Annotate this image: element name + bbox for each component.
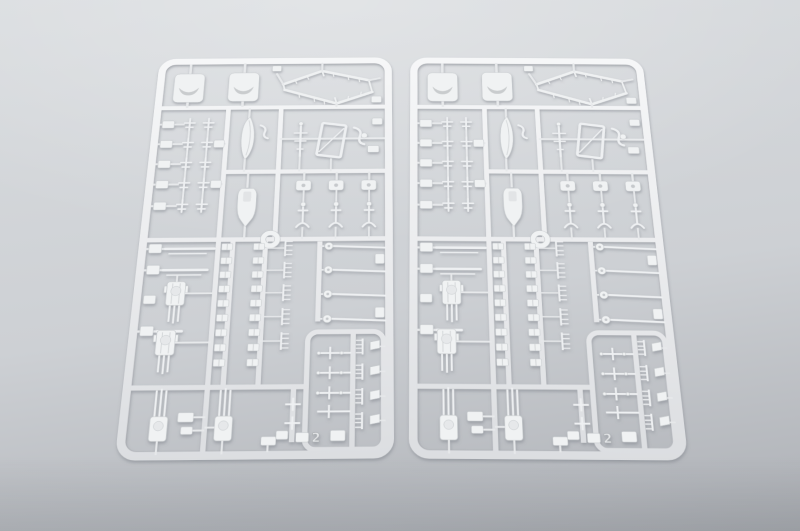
photo-background: 2 — [0, 0, 800, 531]
sprues-perspective-wrapper — [112, 58, 690, 460]
sprue-left — [112, 58, 394, 460]
sprue-right — [408, 58, 690, 460]
